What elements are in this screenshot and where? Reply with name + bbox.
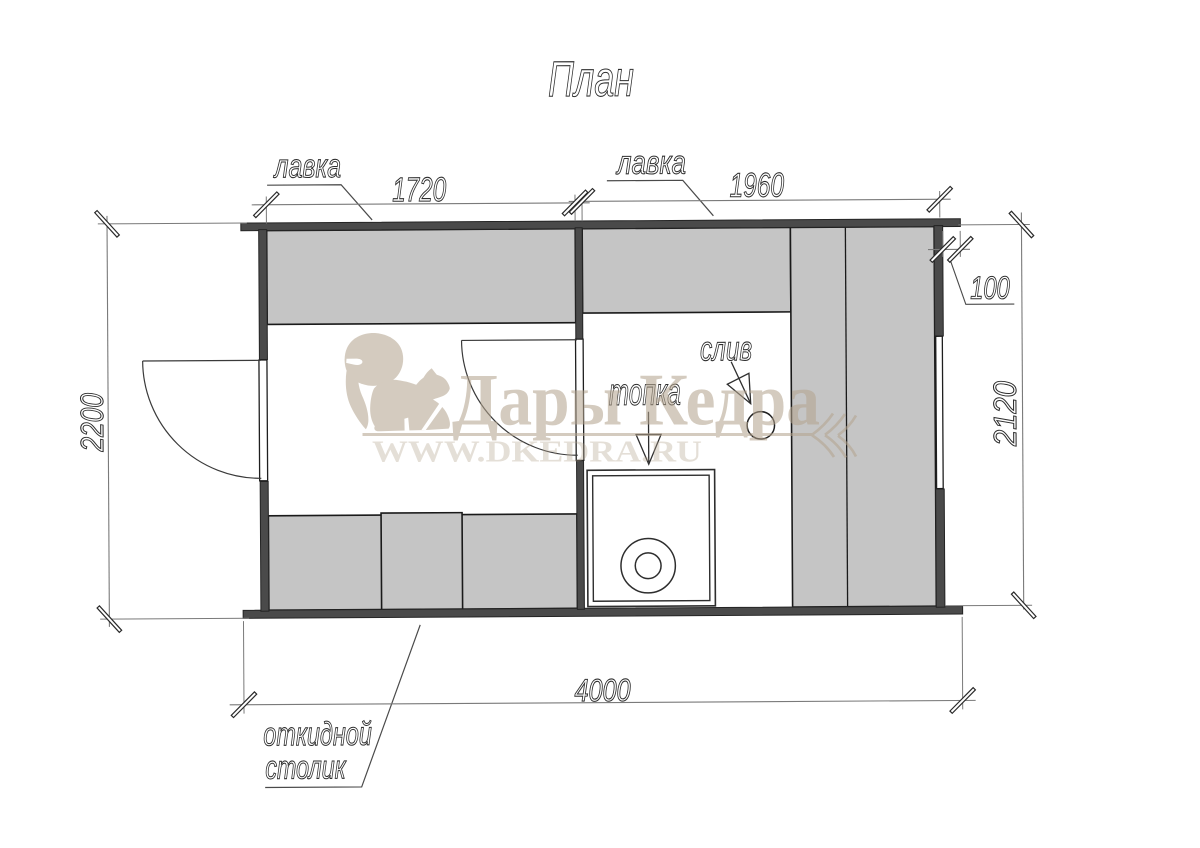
svg-text:1960: 1960 (729, 166, 784, 204)
svg-text:100: 100 (970, 270, 1010, 306)
svg-text:лавка: лавка (615, 143, 686, 180)
svg-text:План: План (548, 51, 634, 108)
svg-text:откидной: откидной (263, 715, 372, 753)
svg-text:лавка: лавка (273, 147, 341, 184)
svg-text:4000: 4000 (574, 672, 631, 708)
svg-text:1720: 1720 (392, 171, 446, 209)
svg-text:Дары Кедра: Дары Кедра (452, 360, 820, 442)
svg-text:2200: 2200 (74, 393, 110, 453)
svg-text:2120: 2120 (987, 381, 1023, 447)
svg-text:столик: столик (265, 748, 347, 785)
svg-text:WWW.DKEDRA.RU: WWW.DKEDRA.RU (372, 434, 702, 469)
